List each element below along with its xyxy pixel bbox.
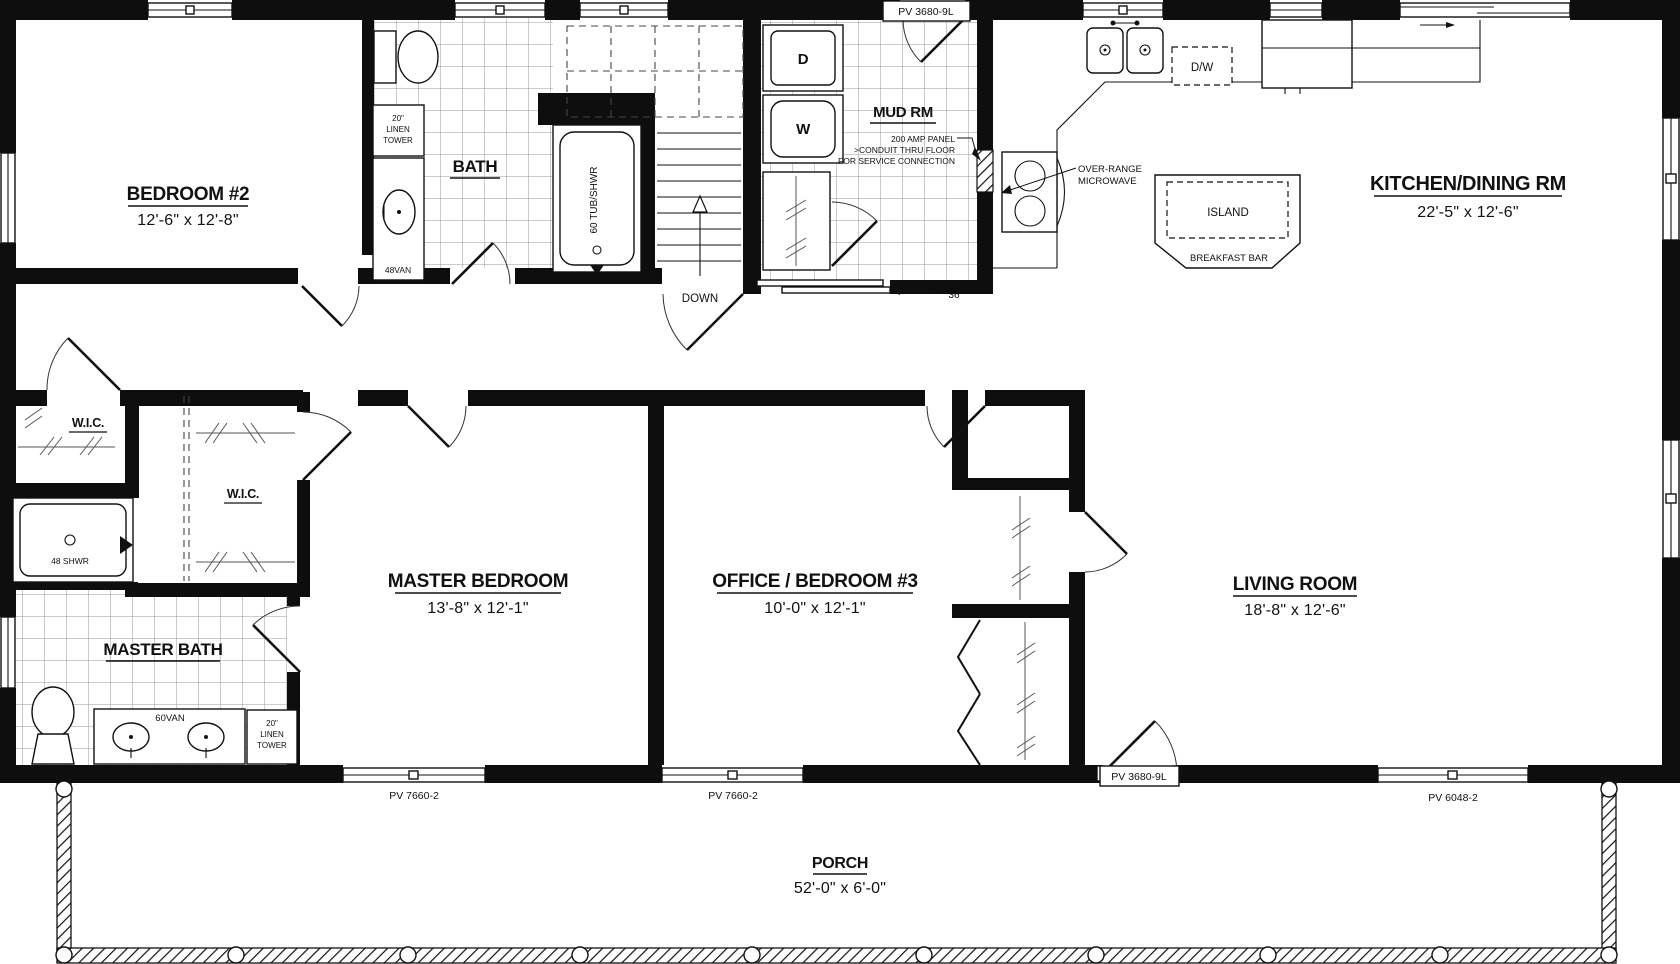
window-top-bath-right bbox=[580, 3, 668, 17]
linen-line1: 20" bbox=[392, 114, 404, 123]
window-bottom-master bbox=[343, 768, 485, 782]
bathtub: 60 TUB/SHWR bbox=[553, 125, 641, 275]
wic2-door bbox=[303, 412, 351, 480]
panel-note-line2: >CONDUIT THRU FLOOR bbox=[854, 145, 955, 155]
washer-label: W bbox=[796, 121, 811, 138]
refrigerator bbox=[1262, 20, 1352, 94]
microwave-note-line1: OVER-RANGE bbox=[1078, 164, 1142, 175]
kitchen-fixtures: D/W ISLAND BREAKFAST BAR bbox=[993, 20, 1480, 268]
linen-m-line1: 20" bbox=[266, 719, 278, 728]
door-width-label: 36 bbox=[948, 290, 960, 301]
floor-plan-drawing: DOWN 20" LINEN TOWER 48VAN 60 TUB/SHWR bbox=[0, 0, 1680, 964]
porch-structure bbox=[56, 781, 1617, 963]
stairs-down-label: DOWN bbox=[682, 293, 718, 305]
porch-rail-left bbox=[57, 783, 71, 955]
bedroom2-name: BEDROOM #2 bbox=[127, 184, 250, 205]
window-top-sink bbox=[1083, 3, 1163, 17]
linen-m-line3: TOWER bbox=[257, 741, 287, 750]
linen-line2: LINEN bbox=[386, 125, 410, 134]
wic1-door bbox=[47, 338, 120, 390]
island-label: ISLAND bbox=[1207, 207, 1249, 219]
tub-label: 60 TUB/SHWR bbox=[589, 166, 600, 233]
top-door-label: PV 3680-9L bbox=[898, 6, 954, 18]
kitchen-sink bbox=[1087, 21, 1163, 74]
master-window-label: PV 7660-2 bbox=[389, 790, 439, 802]
dishwasher-label: D/W bbox=[1191, 62, 1214, 74]
living-window-label: PV 6048-2 bbox=[1428, 792, 1478, 804]
master-bedroom-dims: 13'-8" x 12'-1" bbox=[427, 600, 528, 617]
living-closet-door bbox=[1085, 512, 1127, 572]
window-top-bath-left bbox=[455, 3, 545, 17]
washer: W bbox=[763, 95, 843, 163]
dryer-label: D bbox=[798, 51, 809, 68]
master-bedroom-door bbox=[408, 406, 466, 447]
office-window-label: PV 7660-2 bbox=[708, 790, 758, 802]
linen-line3: TOWER bbox=[383, 136, 413, 145]
bath-toilet bbox=[374, 31, 438, 83]
porch-posts bbox=[56, 781, 1617, 963]
bifold-doors bbox=[958, 620, 980, 765]
floor-plan: DOWN 20" LINEN TOWER 48VAN 60 TUB/SHWR bbox=[0, 0, 1680, 964]
linen-m-line2: LINEN bbox=[260, 730, 284, 739]
hall-closets bbox=[958, 496, 1035, 765]
window-right-living bbox=[1663, 440, 1679, 558]
bath-vanity-label: 48VAN bbox=[385, 265, 411, 275]
bedroom2-dims: 12'-6" x 12'-8" bbox=[137, 212, 238, 229]
island-breakfast-bar: ISLAND BREAKFAST BAR bbox=[1155, 175, 1300, 268]
master-bath-name: MASTER BATH bbox=[103, 640, 222, 659]
window-right-kitchen bbox=[1663, 118, 1679, 240]
living-dims: 18'-8" x 12'-6" bbox=[1244, 602, 1345, 619]
kitchen-dims: 22'-5" x 12'-6" bbox=[1417, 204, 1518, 221]
office-dims: 10'-0" x 12'-1" bbox=[764, 600, 865, 617]
porch-dims: 52'-0" x 6'-0" bbox=[794, 880, 886, 897]
bath-name: BATH bbox=[453, 157, 498, 176]
panel-note-line1: 200 AMP PANEL bbox=[891, 134, 955, 144]
porch-rail-bottom bbox=[57, 948, 1616, 963]
stair-direction-arrowhead bbox=[693, 196, 707, 212]
window-top-bedroom2 bbox=[148, 3, 232, 17]
living-name: LIVING ROOM bbox=[1233, 574, 1357, 595]
porch-name: PORCH bbox=[812, 855, 868, 872]
bedroom2-door bbox=[302, 286, 359, 326]
porch-rail-right bbox=[1602, 783, 1616, 955]
wic1-name: W.I.C. bbox=[72, 416, 104, 430]
window-bottom-office bbox=[662, 768, 803, 782]
kitchen-name: KITCHEN/DINING RM bbox=[1370, 173, 1566, 195]
mudroom-closet bbox=[763, 172, 830, 270]
master-vanity-label: 60VAN bbox=[155, 713, 185, 724]
master-linen-tower: 20" LINEN TOWER bbox=[247, 710, 297, 764]
bath-vanity: 48VAN bbox=[373, 158, 424, 280]
microwave-note-line2: MICROWAVE bbox=[1078, 176, 1137, 187]
shower: 48 SHWR bbox=[13, 498, 133, 582]
window-top-kitchen-slider bbox=[1400, 3, 1570, 28]
window-bottom-living bbox=[1378, 768, 1528, 782]
breakfast-bar-label: BREAKFAST BAR bbox=[1190, 253, 1268, 264]
dryer: D bbox=[763, 25, 843, 91]
dishwasher: D/W bbox=[1172, 47, 1232, 85]
master-toilet bbox=[32, 687, 74, 764]
panel-note-line3: FOR SERVICE CONNECTION bbox=[838, 156, 955, 166]
living-door-label: PV 3680-9L bbox=[1111, 771, 1167, 783]
window-left-master-bath bbox=[1, 617, 15, 688]
master-bedroom-name: MASTER BEDROOM bbox=[388, 571, 569, 592]
slide-direction-arrow bbox=[1446, 22, 1455, 28]
electrical-panel bbox=[977, 150, 993, 192]
master-vanity: 60VAN bbox=[94, 709, 245, 764]
mudroom-name: MUD RM bbox=[873, 104, 933, 121]
window-top-kitchen-small bbox=[1270, 3, 1322, 17]
shower-label: 48 SHWR bbox=[51, 556, 89, 566]
window-left-bedroom2 bbox=[1, 153, 15, 243]
office-name: OFFICE / BEDROOM #3 bbox=[712, 571, 917, 592]
bath-linen-tower: 20" LINEN TOWER bbox=[373, 105, 424, 156]
wic2-name: W.I.C. bbox=[227, 487, 259, 501]
